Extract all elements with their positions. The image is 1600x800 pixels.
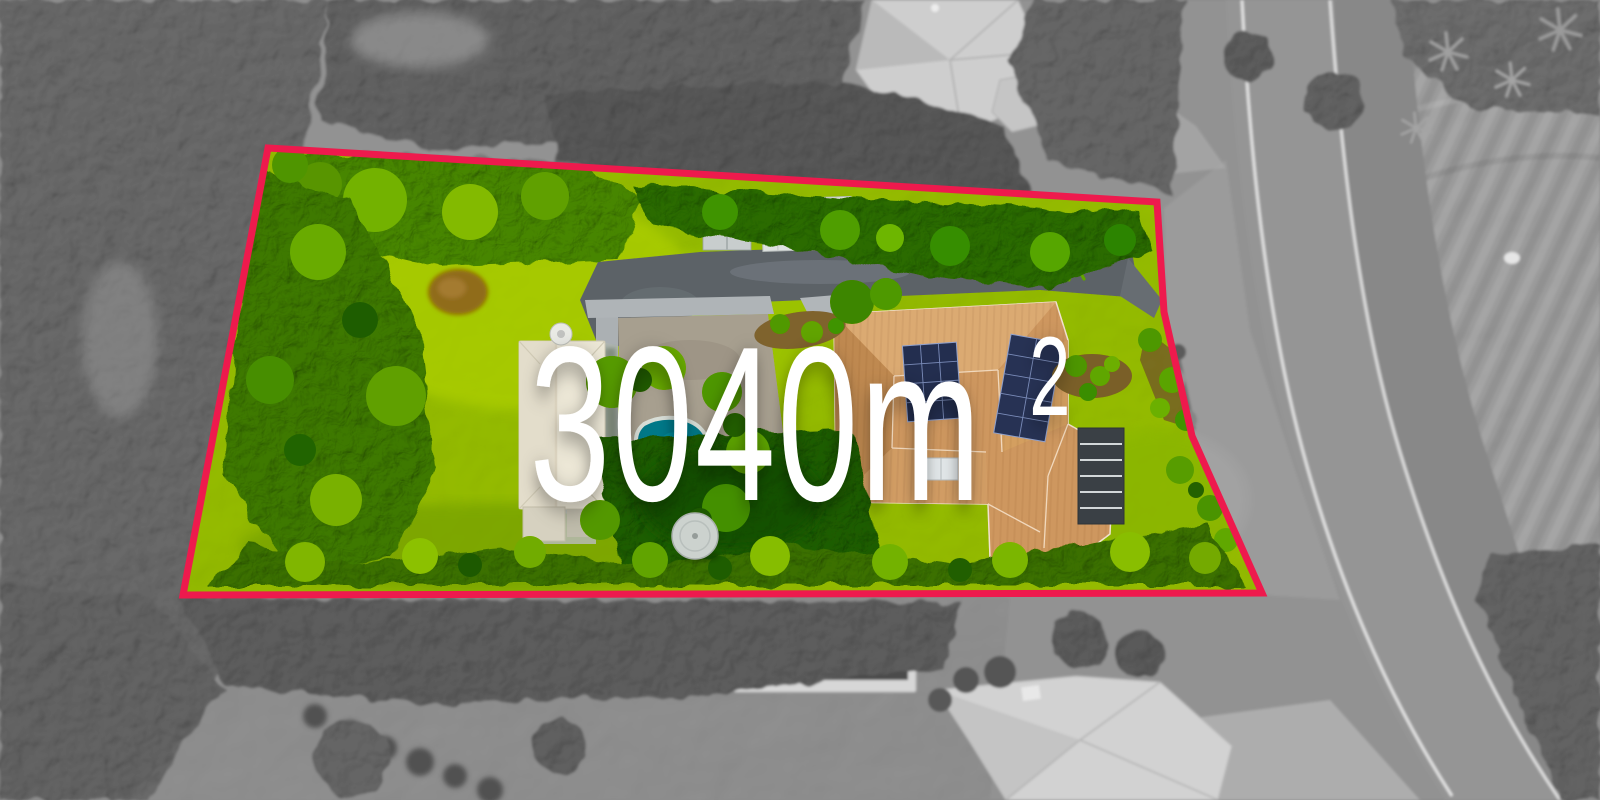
aerial-photo-canvas: 3040m 2 (0, 0, 1600, 800)
area-superscript: 2 (1029, 314, 1072, 439)
area-value: 3040m (530, 300, 983, 547)
aerial-property-photo: 3040m 2 (0, 0, 1600, 800)
area-label: 3040m 2 (530, 300, 1073, 547)
area-label-text: 3040m 2 (530, 300, 1073, 547)
